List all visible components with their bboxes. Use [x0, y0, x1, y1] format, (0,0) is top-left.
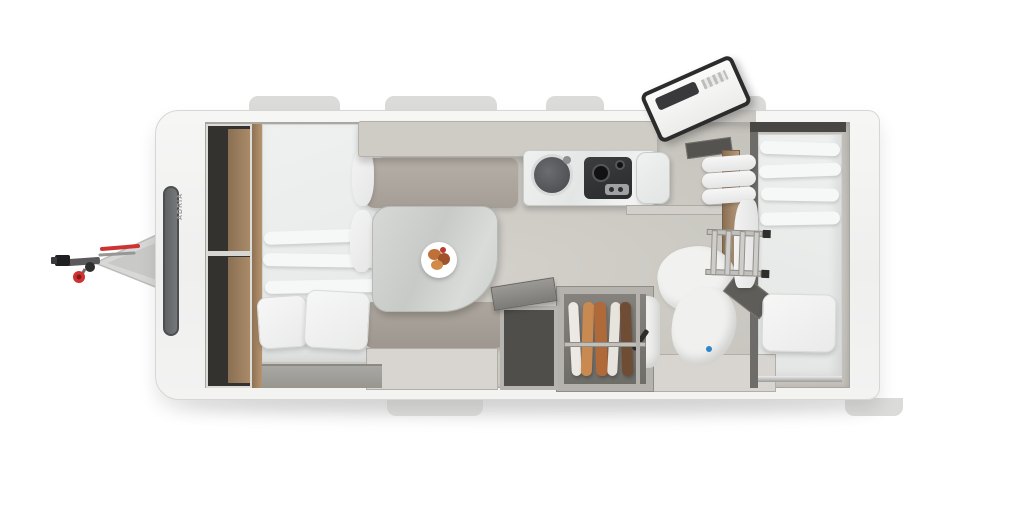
dinette-sofa-top [366, 158, 518, 208]
brand-text: ADRIA [177, 170, 184, 220]
caravan-floorplan: ADRIA [0, 0, 1024, 512]
handbrake-knob [85, 262, 95, 272]
hanging-garment [594, 302, 609, 376]
duvet-fold [760, 141, 840, 157]
bed-headboard-panel [252, 124, 262, 388]
ladder-mount [763, 230, 771, 238]
cabinet-wood-back [228, 257, 250, 383]
faucet [563, 156, 571, 164]
cabinet-wood-back [228, 129, 250, 251]
burner-small [615, 160, 625, 170]
storage-chest [500, 306, 558, 390]
shower-drain [706, 346, 712, 352]
bed-head-frame [750, 122, 846, 132]
jockey-wheel-hub [77, 275, 82, 280]
wardrobe-divider [636, 294, 640, 384]
burner-large [592, 164, 610, 182]
hob-knob [618, 187, 623, 192]
bed-foot-bench [262, 364, 382, 388]
pastry [431, 260, 443, 270]
bunk-ladder [705, 229, 773, 279]
duvet-fold [760, 211, 840, 225]
coupling-head [55, 255, 70, 266]
coupling-rod [68, 257, 100, 266]
pillow [256, 294, 310, 349]
door-window [654, 81, 699, 111]
berry [440, 247, 446, 253]
door-vent [701, 70, 729, 90]
ladder-mount [761, 270, 769, 278]
front-wardrobe-cabinets [206, 124, 252, 388]
pillow [304, 289, 371, 350]
worktop-extension [636, 152, 670, 204]
window-bottom-2 [845, 398, 903, 416]
pillow [761, 293, 836, 352]
under-seat-storage [366, 348, 498, 390]
coupling-tip [51, 257, 57, 264]
cabinet-divider [208, 251, 250, 256]
window-bottom-1 [387, 398, 483, 416]
grey-lever [100, 253, 134, 255]
bolster-cushion [350, 210, 374, 272]
duvet-fold [761, 187, 839, 201]
wardrobe-rail [564, 342, 646, 347]
hob-knob [609, 187, 614, 192]
bed-foot-trim [758, 376, 842, 382]
